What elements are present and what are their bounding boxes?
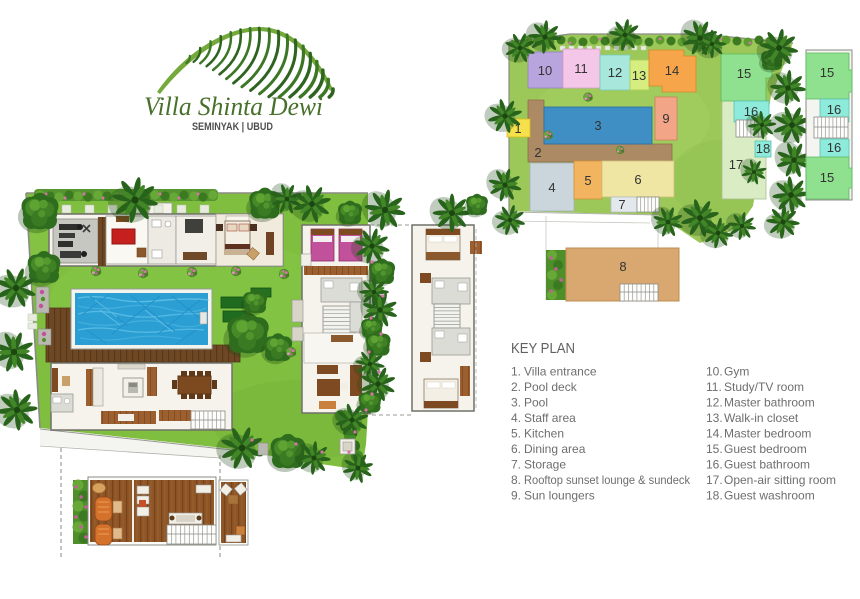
svg-text:Sun loungers: Sun loungers — [524, 489, 595, 503]
svg-text:Guest washroom: Guest washroom — [724, 489, 815, 503]
svg-text:5: 5 — [584, 173, 591, 188]
svg-text:Villa Shinta Dewi: Villa Shinta Dewi — [144, 92, 323, 121]
svg-text:Guest bathroom: Guest bathroom — [724, 458, 810, 472]
svg-text:16.: 16. — [706, 458, 723, 472]
svg-text:16: 16 — [744, 104, 758, 119]
svg-text:Master bathroom: Master bathroom — [724, 396, 815, 410]
svg-text:15: 15 — [820, 65, 834, 80]
svg-text:15: 15 — [737, 66, 751, 81]
svg-text:Master bedroom: Master bedroom — [724, 427, 811, 441]
svg-text:Storage: Storage — [524, 458, 566, 472]
svg-text:17.: 17. — [706, 473, 723, 487]
svg-text:12: 12 — [608, 65, 622, 80]
svg-text:15: 15 — [820, 170, 834, 185]
svg-text:5.: 5. — [511, 427, 521, 441]
svg-text:11: 11 — [574, 61, 588, 76]
svg-text:Dining area: Dining area — [524, 442, 586, 456]
svg-text:Walk-in closet: Walk-in closet — [724, 411, 799, 425]
svg-text:KEY PLAN: KEY PLAN — [511, 340, 575, 357]
svg-text:Open-air sitting room: Open-air sitting room — [724, 473, 836, 487]
svg-text:Kitchen: Kitchen — [524, 427, 564, 441]
svg-text:Study/TV room: Study/TV room — [724, 380, 804, 394]
svg-text:14: 14 — [665, 63, 679, 78]
svg-text:15.: 15. — [706, 442, 723, 456]
svg-text:4.: 4. — [511, 411, 521, 425]
svg-text:Gym: Gym — [724, 365, 749, 379]
svg-text:2: 2 — [534, 145, 541, 160]
svg-text:1: 1 — [514, 121, 521, 136]
svg-text:Guest bedroom: Guest bedroom — [724, 442, 807, 456]
svg-text:9: 9 — [662, 111, 669, 126]
svg-text:16: 16 — [827, 102, 841, 117]
svg-text:2.: 2. — [511, 380, 521, 394]
svg-text:Rooftop sunset lounge & sundec: Rooftop sunset lounge & sundeck — [524, 473, 691, 487]
svg-text:SEMINYAK | UBUD: SEMINYAK | UBUD — [192, 121, 273, 133]
svg-text:4: 4 — [548, 180, 555, 195]
svg-text:10: 10 — [538, 63, 552, 78]
svg-text:17: 17 — [729, 157, 743, 172]
svg-text:11.: 11. — [706, 380, 722, 394]
svg-text:8.: 8. — [511, 473, 521, 487]
svg-text:8: 8 — [619, 259, 626, 274]
svg-text:6: 6 — [634, 172, 641, 187]
svg-text:16: 16 — [827, 140, 841, 155]
svg-text:12.: 12. — [706, 396, 723, 410]
svg-text:7.: 7. — [511, 458, 521, 472]
svg-text:18: 18 — [756, 141, 770, 156]
svg-text:9.: 9. — [511, 489, 521, 503]
svg-text:14.: 14. — [706, 427, 723, 441]
svg-text:7: 7 — [618, 197, 625, 212]
svg-text:13.: 13. — [706, 411, 723, 425]
svg-text:10.: 10. — [706, 365, 723, 379]
svg-text:6.: 6. — [511, 442, 521, 456]
svg-text:Pool: Pool — [524, 396, 548, 410]
svg-text:3: 3 — [594, 118, 601, 133]
svg-text:18.: 18. — [706, 489, 723, 503]
svg-text:1.: 1. — [511, 365, 521, 379]
svg-text:3.: 3. — [511, 396, 521, 410]
svg-text:Pool deck: Pool deck — [524, 380, 578, 394]
svg-text:13: 13 — [632, 68, 646, 83]
svg-text:Staff area: Staff area — [524, 411, 576, 425]
svg-text:Villa entrance: Villa entrance — [524, 365, 597, 379]
